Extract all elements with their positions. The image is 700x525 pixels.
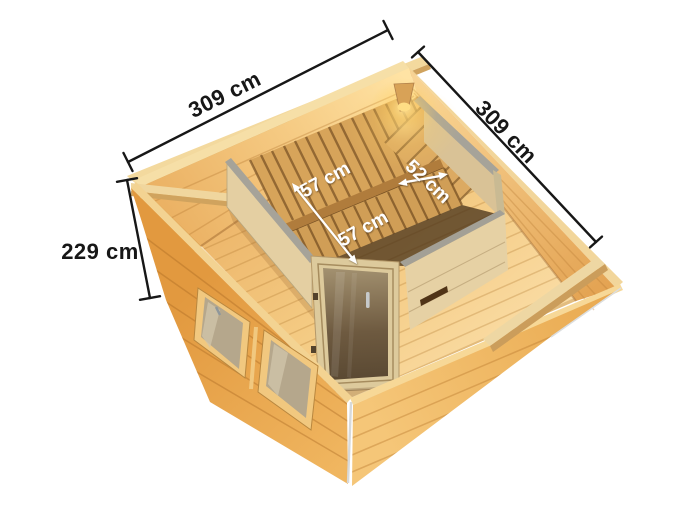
front-corner-metal-strip [348, 402, 351, 483]
door-hinge-top [313, 293, 318, 300]
sauna-dimension-diagram: 309 cm 309 cm 229 cm 57 cm 52 cm 57 cm [0, 0, 700, 525]
door-handle [366, 292, 370, 308]
door-hinge-bottom [311, 346, 316, 353]
diagram-canvas: 309 cm 309 cm 229 cm 57 cm 52 cm 57 cm [0, 0, 700, 525]
dimension-label-wall-height: 229 cm [61, 239, 139, 264]
